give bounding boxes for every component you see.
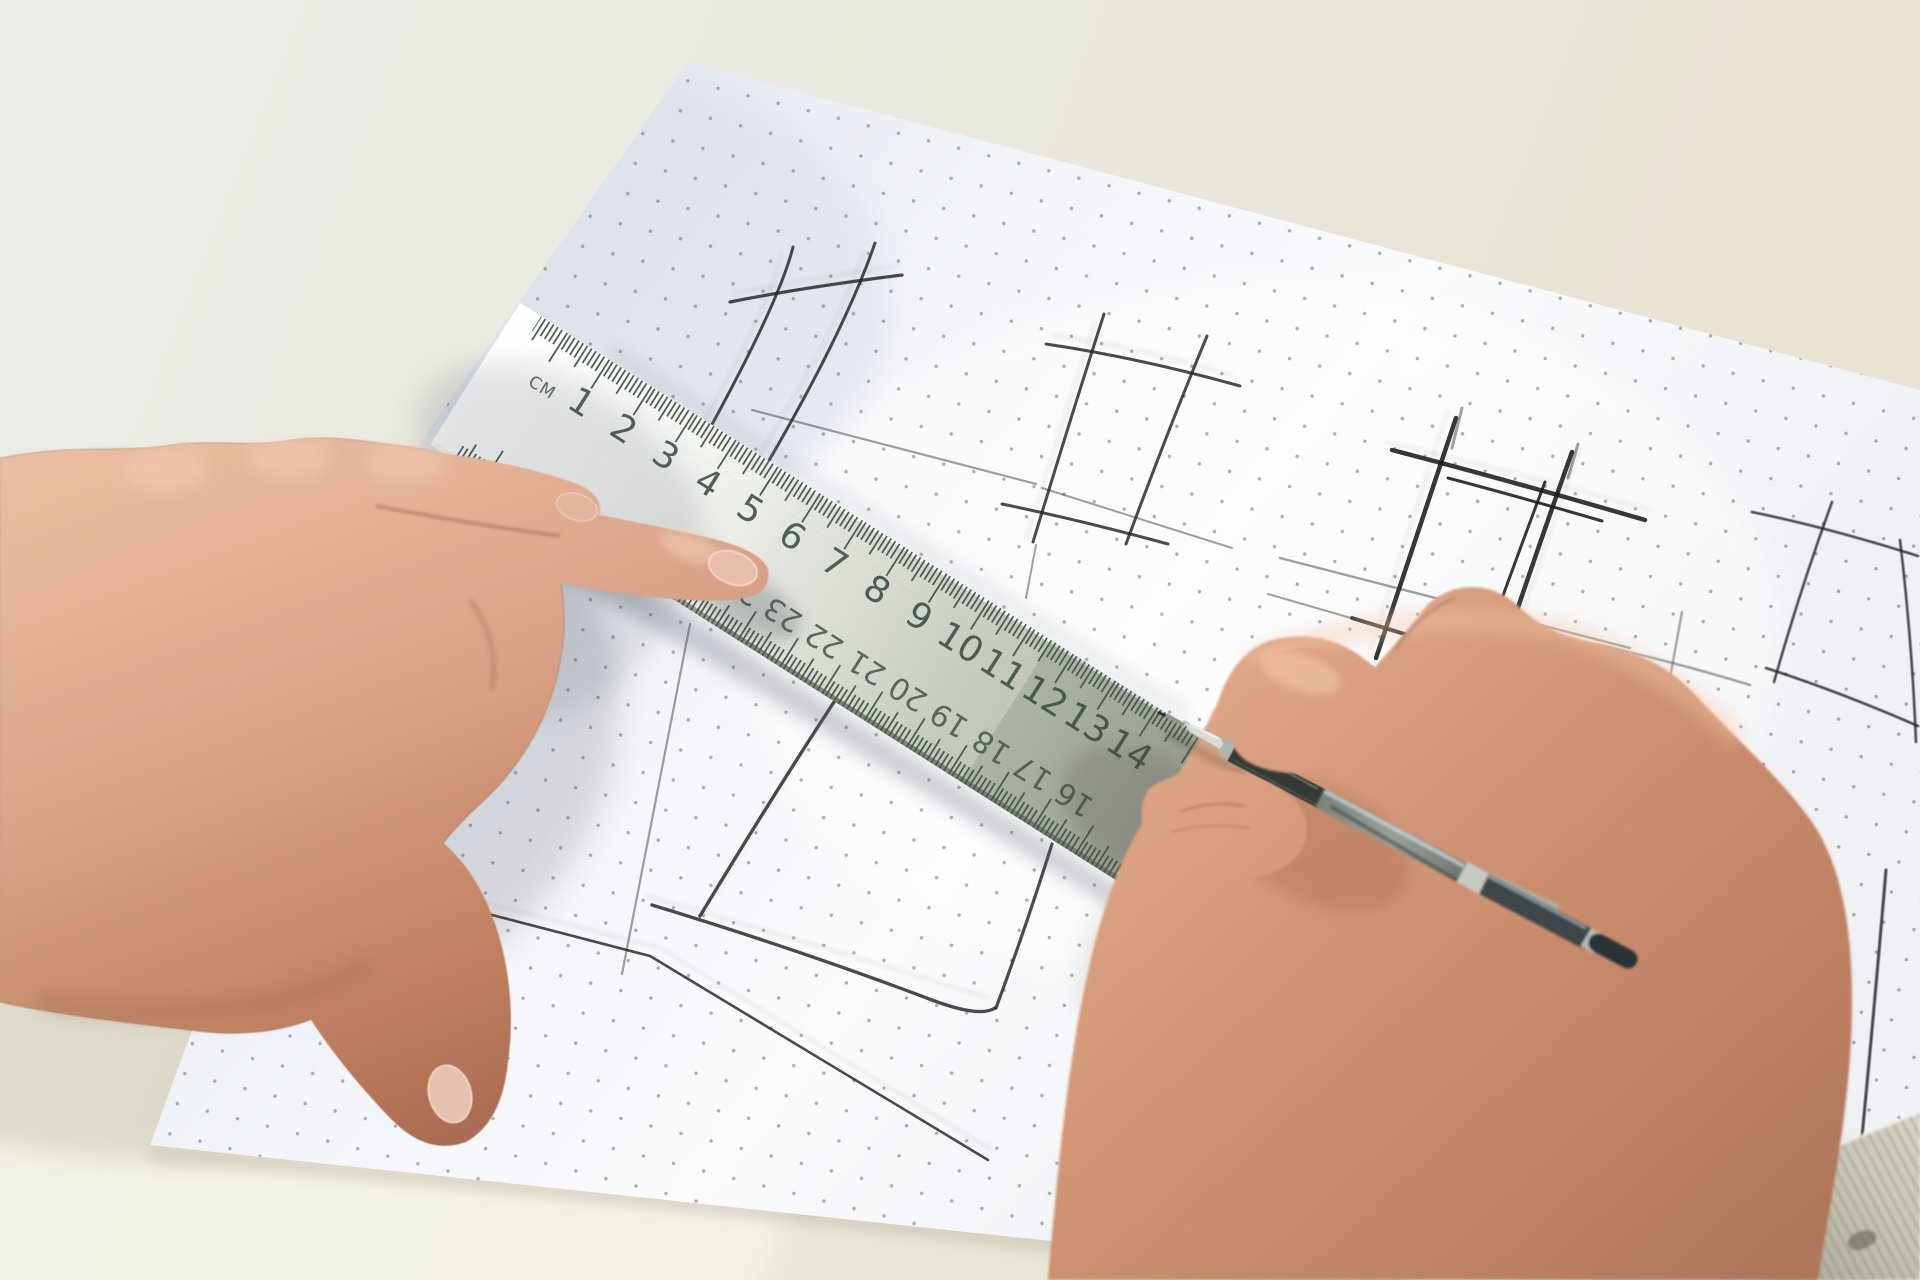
scene-photo: CM 1 2 3 4 5 6 7 8 9 10 11 12 13 14 24 2… <box>0 0 1920 1280</box>
pencil-band <box>1462 872 1486 885</box>
knuckle-highlight <box>248 436 332 480</box>
knuckle-highlight <box>363 440 447 484</box>
pencil-collar <box>1222 746 1234 752</box>
knuckle-highlight <box>123 448 207 492</box>
